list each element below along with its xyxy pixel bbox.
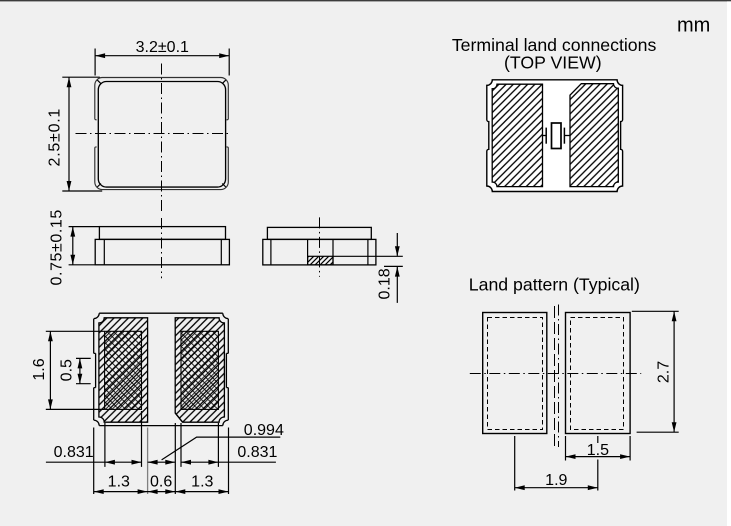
svg-text:1.6: 1.6 [31,358,48,380]
svg-text:0.5: 0.5 [59,359,76,381]
svg-text:0.994: 0.994 [244,422,284,439]
svg-text:1.9: 1.9 [545,472,567,489]
svg-text:2.5±0.1: 2.5±0.1 [47,108,64,167]
svg-text:2.7: 2.7 [656,361,673,383]
svg-text:1.5: 1.5 [587,442,609,459]
svg-text:1.3: 1.3 [108,473,130,490]
svg-text:0.831: 0.831 [237,444,277,461]
svg-text:0.75±0.15: 0.75±0.15 [49,209,66,285]
svg-text:0.18: 0.18 [377,268,394,299]
svg-text:(TOP VIEW): (TOP VIEW) [504,53,602,73]
svg-text:1.3: 1.3 [191,473,213,490]
svg-text:Land pattern (Typical): Land pattern (Typical) [469,275,640,295]
svg-text:0.831: 0.831 [54,444,94,461]
svg-text:3.2±0.1: 3.2±0.1 [136,39,189,56]
svg-text:0.6: 0.6 [150,473,172,490]
svg-text:mm: mm [677,15,710,37]
